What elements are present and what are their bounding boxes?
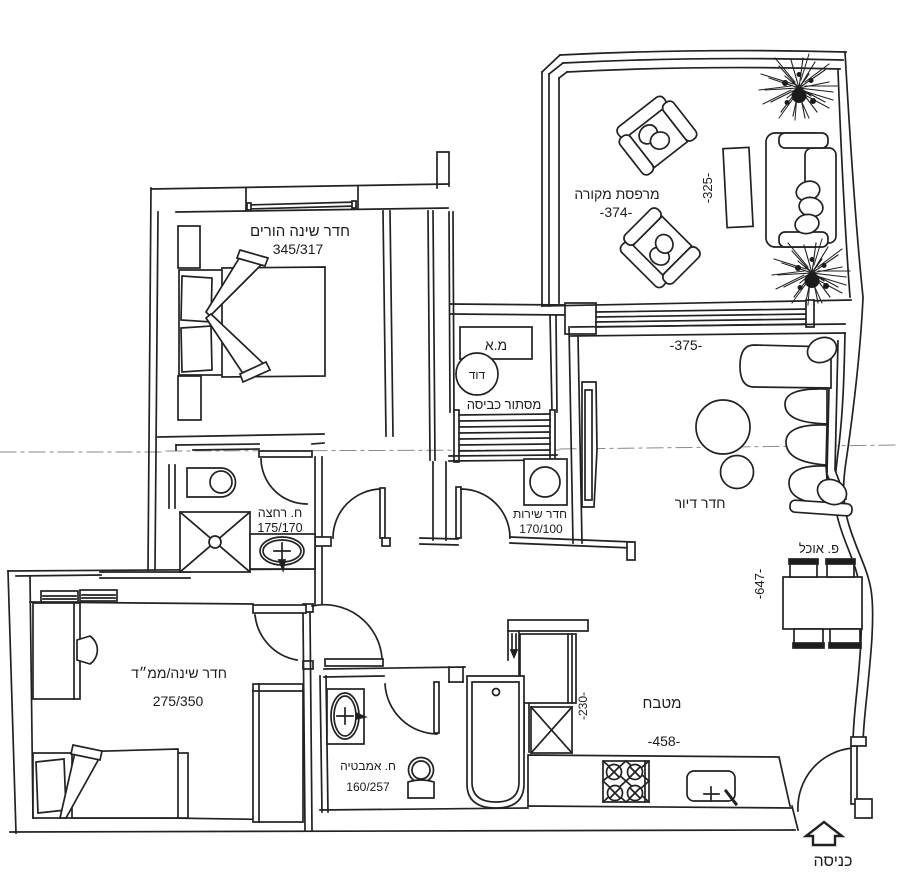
svg-text:345/317: 345/317 (273, 241, 324, 257)
svg-text:-374-: -374- (600, 204, 633, 220)
svg-text:160/257: 160/257 (346, 780, 390, 794)
svg-text:275/350: 275/350 (153, 693, 204, 709)
svg-text:170/100: 170/100 (519, 522, 563, 536)
svg-text:מסתור כביסה: מסתור כביסה (467, 397, 542, 412)
svg-text:175/170: 175/170 (257, 521, 302, 535)
svg-text:חדר שינה הורים: חדר שינה הורים (250, 223, 350, 240)
svg-text:-230-: -230- (576, 692, 590, 720)
svg-text:מטבח: מטבח (643, 695, 682, 712)
svg-text:חדר שירות: חדר שירות (513, 507, 567, 521)
svg-text:-325-: -325- (700, 173, 715, 203)
svg-text:ח. רחצה: ח. רחצה (258, 506, 302, 520)
svg-text:מ.א: מ.א (485, 337, 507, 353)
svg-text:כניסה: כניסה (814, 853, 853, 870)
svg-text:-647-: -647- (752, 569, 767, 599)
svg-text:-375-: -375- (670, 337, 703, 353)
svg-text:פ. אוכל: פ. אוכל (799, 541, 839, 556)
svg-text:מרפסת מקורה: מרפסת מקורה (574, 186, 659, 202)
svg-text:ח. אמבטיה: ח. אמבטיה (340, 759, 396, 773)
svg-text:דוד: דוד (469, 368, 486, 382)
svg-text:-458-: -458- (648, 733, 681, 749)
svg-text:חדר דיור: חדר דיור (675, 495, 726, 511)
svg-text:חדר שינה/ממ״ד: חדר שינה/ממ״ד (131, 665, 227, 681)
